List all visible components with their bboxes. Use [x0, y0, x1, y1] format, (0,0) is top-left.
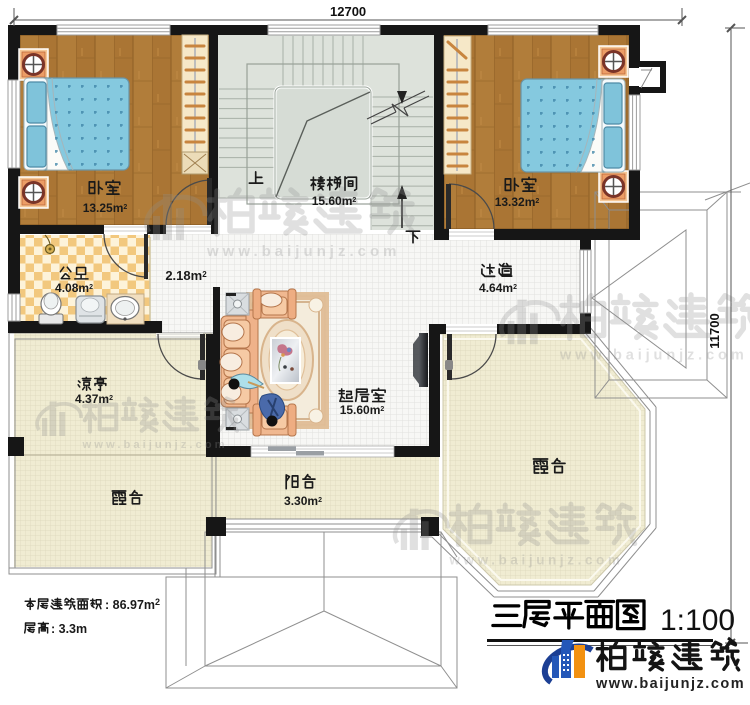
svg-text:www.baijunjz.com: www.baijunjz.com: [82, 439, 228, 451]
svg-text:: 3.3m: : 3.3m: [51, 622, 87, 636]
svg-text:: 86.97m2: : 86.97m2: [105, 597, 160, 612]
svg-text:www.baijunjz.com: www.baijunjz.com: [595, 676, 745, 692]
svg-text:www.baijunjz.com: www.baijunjz.com: [448, 552, 623, 567]
svg-text:13.25m2: 13.25m2: [83, 201, 128, 215]
svg-text:4.08m2: 4.08m2: [55, 281, 93, 295]
svg-text:2.18m2: 2.18m2: [165, 268, 207, 283]
svg-text:15.60m2: 15.60m2: [312, 194, 357, 208]
svg-text:www.baijunjz.com: www.baijunjz.com: [559, 348, 748, 364]
svg-text:www.baijunjz.com: www.baijunjz.com: [206, 243, 400, 260]
svg-text:11700: 11700: [707, 313, 722, 348]
svg-text:12700: 12700: [330, 4, 366, 19]
svg-text:4.37m2: 4.37m2: [75, 392, 113, 406]
svg-text:1:100: 1:100: [660, 604, 735, 637]
svg-text:13.32m2: 13.32m2: [495, 195, 540, 209]
svg-text:4.64m2: 4.64m2: [479, 281, 517, 295]
svg-text:15.60m2: 15.60m2: [340, 403, 385, 417]
svg-text:3.30m2: 3.30m2: [284, 494, 322, 508]
